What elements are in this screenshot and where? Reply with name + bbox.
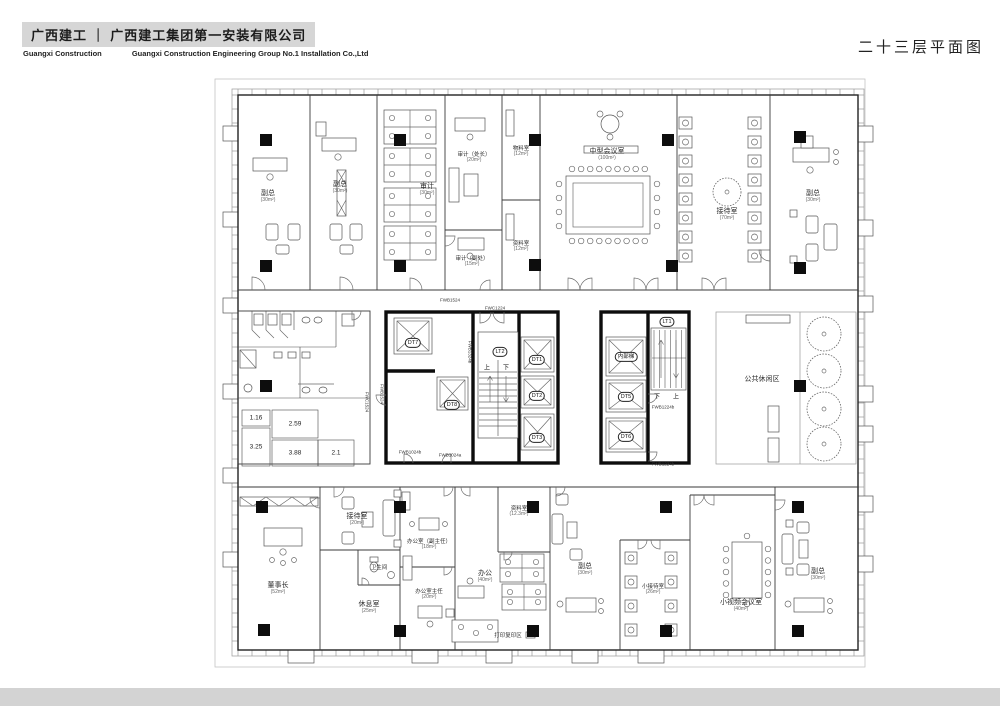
page: 广西建工 ｜ 广西建工集团第一安装有限公司 Guangxi Constructi…	[0, 0, 1000, 706]
floor-plan-drawing: .w{stroke:#3a3a3a;stroke-width:0.9;fill:…	[0, 0, 1000, 706]
background-strip	[0, 688, 1000, 706]
